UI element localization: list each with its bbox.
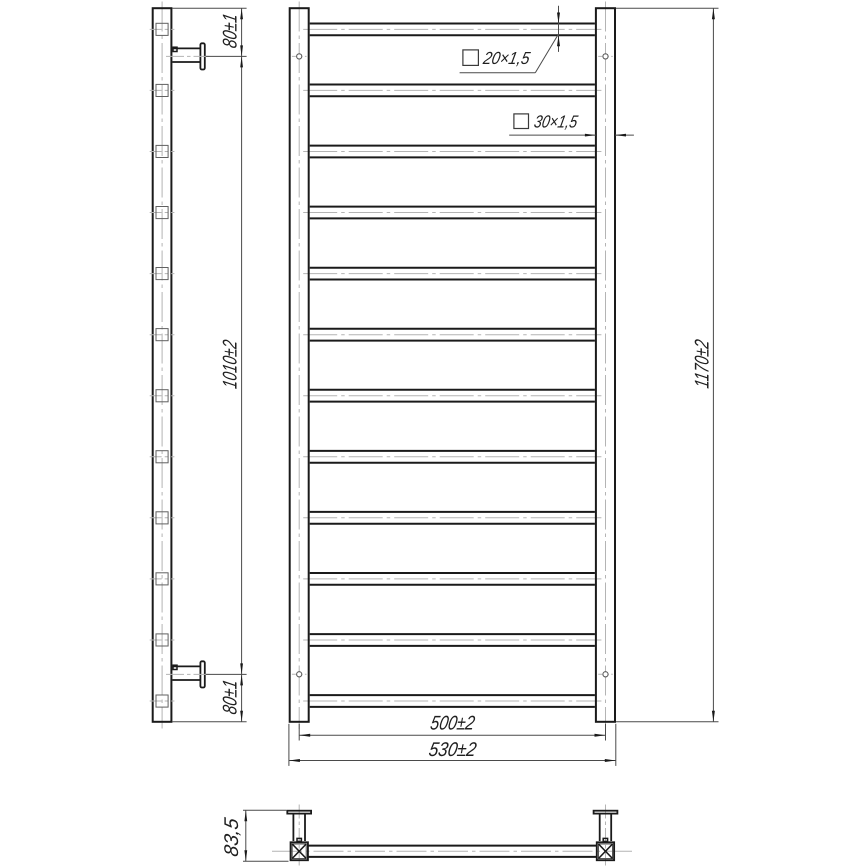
svg-text:30×1,5: 30×1,5	[532, 112, 580, 132]
svg-text:1170±2: 1170±2	[691, 338, 713, 390]
svg-text:80±1: 80±1	[219, 12, 241, 50]
svg-text:1010±2: 1010±2	[219, 338, 241, 390]
svg-text:83,5: 83,5	[220, 815, 242, 858]
svg-text:80±1: 80±1	[219, 678, 241, 716]
svg-text:500±2: 500±2	[429, 712, 477, 734]
svg-text:20×1,5: 20×1,5	[481, 48, 533, 68]
svg-text:530±2: 530±2	[427, 738, 478, 760]
